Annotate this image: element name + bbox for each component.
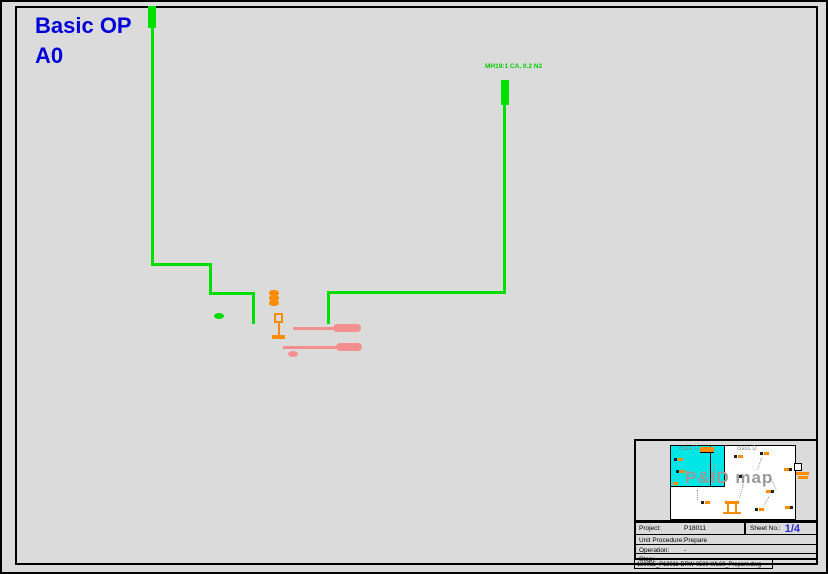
minimap-marker <box>700 447 714 453</box>
project-value: P18011 <box>684 525 706 532</box>
project-label: Project: <box>639 525 661 532</box>
hose-coupling-icon <box>333 324 361 332</box>
table-row: Operation: - <box>636 545 816 554</box>
pipe-terminal-bar-left-icon[interactable] <box>148 6 156 28</box>
minimap-marker <box>759 508 764 511</box>
pid-drawing-canvas: Basic OP A0 MH19:1 CA, 0.2 N2 class <box>0 0 828 574</box>
sensor-head-icon <box>274 313 283 323</box>
minimap-class-label-left: class C <box>679 446 699 452</box>
pipe-line <box>327 291 330 324</box>
minimap-marker <box>734 455 737 458</box>
filename-row: 180035_P18011-DRW-0500-WL60_Prepare.dwg <box>634 559 773 569</box>
pipe-line <box>151 26 154 266</box>
minimap-marker <box>771 490 774 493</box>
pipe-terminal-bar-right-icon[interactable] <box>501 80 509 105</box>
minimap-marker <box>784 468 789 471</box>
minimap-edge-marker <box>796 472 809 475</box>
pipe-line <box>252 292 255 324</box>
pipe-line <box>209 263 212 295</box>
hose-coupling-icon <box>336 343 362 351</box>
pipe-stub-icon[interactable] <box>214 313 224 319</box>
minimap-marker <box>680 470 685 473</box>
minimap-marker <box>755 508 758 511</box>
minimap-marker <box>790 506 793 509</box>
sheet-cell: Sheet No.: 1/4 <box>744 523 816 534</box>
minimap-marker <box>673 482 678 485</box>
hose-line <box>293 327 335 330</box>
sheet-no-value: 1/4 <box>785 523 800 535</box>
minimap-edge-marker <box>798 476 808 479</box>
table-row: Unit Procedure: Prepare <box>636 535 816 545</box>
minimap-heading: P&ID map <box>685 468 795 488</box>
minimap-panel[interactable]: class C class D P&ID map <box>670 445 796 520</box>
pipe-line <box>151 263 212 266</box>
minimap-marker <box>738 455 743 458</box>
minimap-route-dots <box>697 490 698 500</box>
table-row: Project: P18011 Sheet No.: 1/4 <box>636 523 816 535</box>
pipe-line <box>209 292 255 295</box>
minimap-marker <box>701 501 704 504</box>
title-block-table: Project: P18011 Sheet No.: 1/4 Unit Proc… <box>634 521 818 560</box>
drawing-filename: 180035_P18011-DRW-0500-WL60_Prepare.dwg <box>637 561 761 568</box>
unit-procedure-value: Prepare <box>684 537 707 544</box>
minimap-class-label-right: class D <box>737 446 757 452</box>
minimap-edge-node-icon <box>794 463 802 471</box>
minimap-marker <box>674 458 677 461</box>
page-title: Basic OP <box>35 14 132 38</box>
pipe-label: MH19:1 CA, 0.2 N2 <box>485 63 542 70</box>
minimap-route-dots <box>714 464 715 478</box>
minimap-marker <box>764 452 769 455</box>
minimap-route-dots <box>764 496 770 505</box>
operation-value: - <box>684 547 686 554</box>
unit-procedure-label: Unit Procedure: <box>639 537 684 544</box>
hose-end-icon <box>288 351 298 357</box>
minimap-marker <box>760 452 763 455</box>
operation-label: Operation: <box>639 547 669 554</box>
minimap-route-dots <box>709 464 710 478</box>
minimap-marker <box>739 475 742 478</box>
minimap-marker <box>678 458 683 461</box>
pipe-line <box>327 291 506 294</box>
sheet-no-label: Sheet No.: <box>750 525 781 532</box>
pipe-line <box>503 103 506 294</box>
minimap-marker <box>789 468 792 471</box>
coil-disc-icon <box>269 300 279 306</box>
sensor-base-icon <box>272 335 285 339</box>
minimap-marker <box>705 501 710 504</box>
minimap-marker <box>676 470 679 473</box>
page-subtitle: A0 <box>35 44 63 68</box>
hose-line <box>283 346 339 349</box>
table-base-icon <box>723 512 741 514</box>
